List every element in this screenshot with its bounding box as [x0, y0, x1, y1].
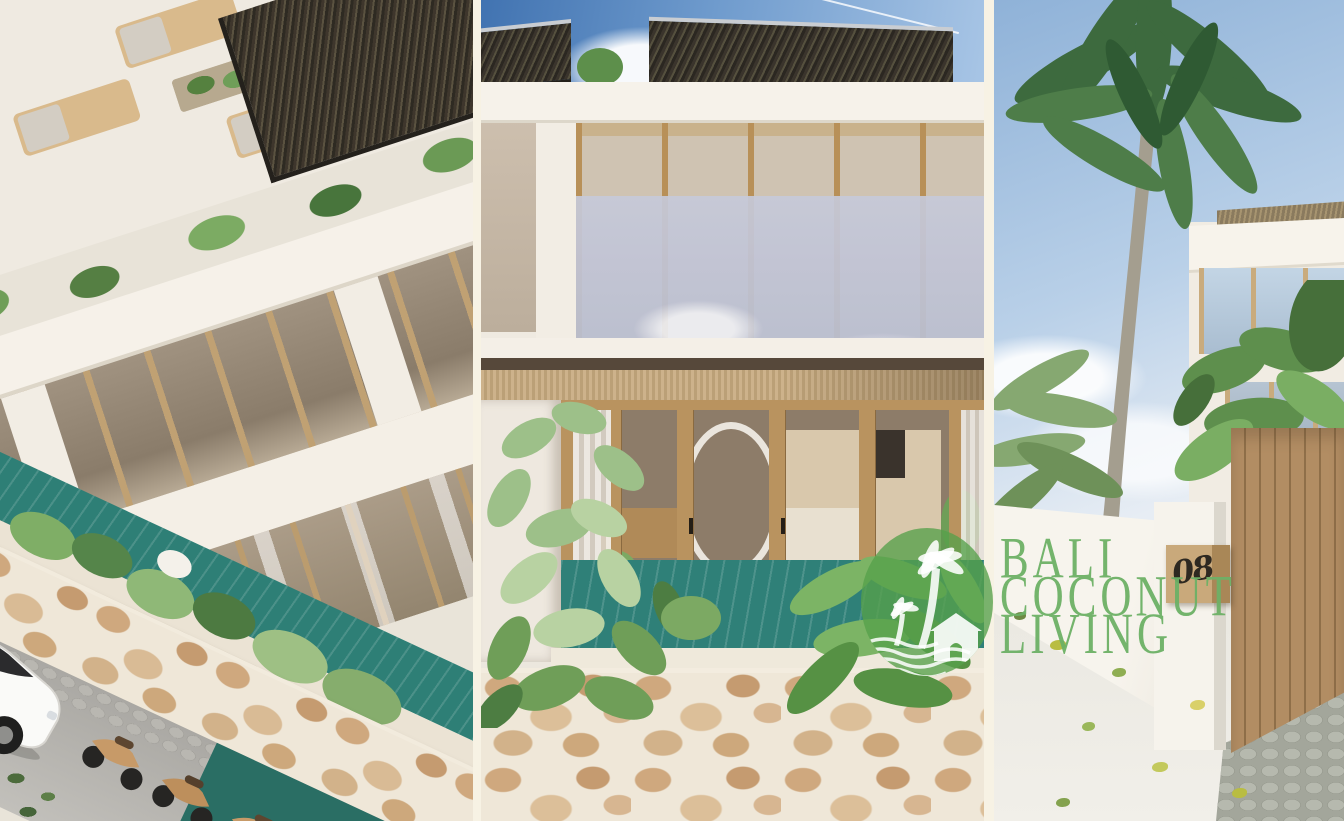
palm-bush — [994, 320, 1160, 540]
upper-floor — [481, 120, 984, 365]
brand-logo-circle — [860, 527, 994, 677]
panel-street-entrance-view: 08 — [994, 0, 1344, 821]
slab-shadow — [481, 358, 984, 370]
panel-aerial-townhouse-view — [0, 0, 473, 821]
upper-side-window — [481, 120, 536, 332]
panel-villa-front-view — [481, 0, 984, 821]
roof-fascia — [481, 82, 984, 123]
white-pier — [536, 120, 576, 338]
pool-plant — [661, 596, 721, 640]
scooter — [217, 804, 296, 821]
brand-logo — [860, 527, 994, 682]
grass-tufts — [0, 760, 80, 821]
scooter — [147, 764, 226, 821]
kitchen-hood — [871, 430, 905, 478]
rooftop-plant — [577, 48, 623, 86]
collage: 08 — [0, 0, 1344, 821]
foliage-left — [481, 378, 709, 728]
scooter — [77, 725, 156, 794]
sun-lounger — [12, 78, 142, 158]
brand-wordmark: BALI COCONUT LIVING — [1000, 541, 1236, 654]
